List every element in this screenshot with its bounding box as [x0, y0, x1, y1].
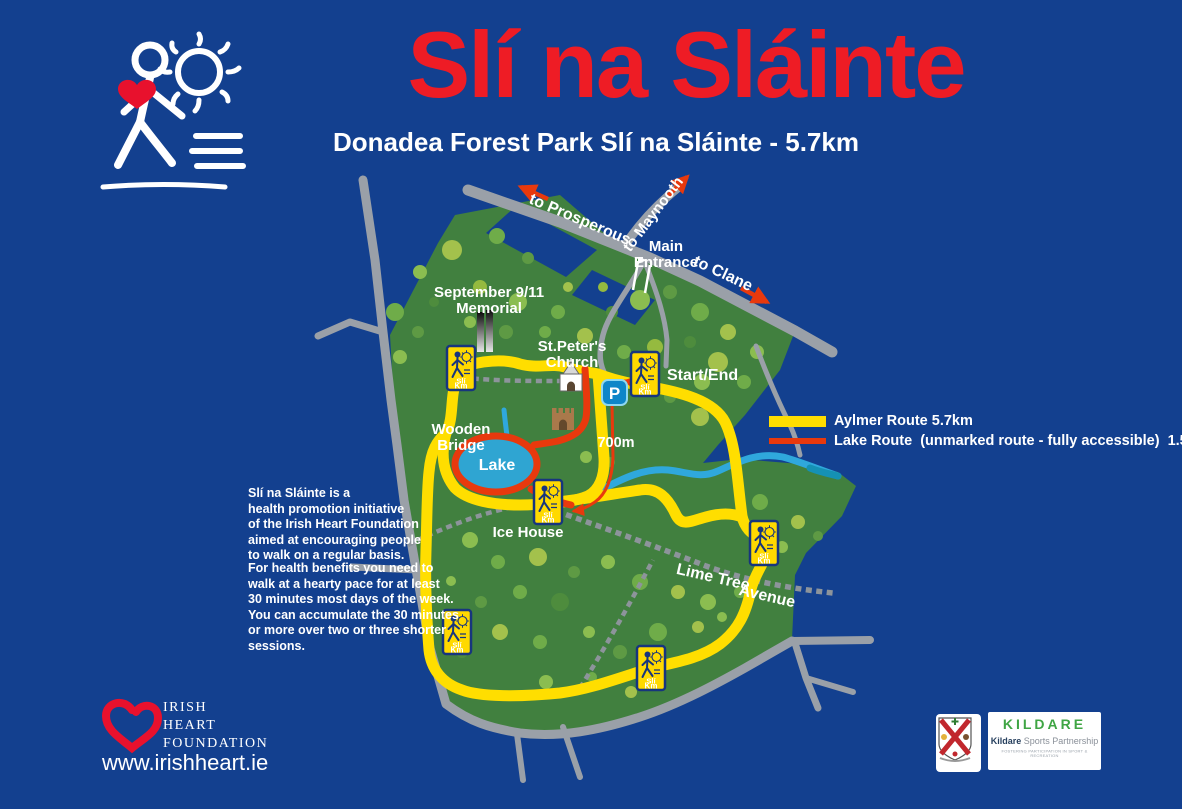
- org-line: HEART: [163, 717, 268, 735]
- tree: [630, 290, 650, 310]
- legend-row-aylmer: Aylmer Route 5.7km: [769, 413, 1182, 429]
- info-line: or more over two or three shorter: [248, 623, 459, 639]
- tree: [386, 303, 404, 321]
- ksp-name-rest: Sports Partnership: [1021, 736, 1098, 746]
- ksp-wordmark: KILDARE: [988, 716, 1101, 732]
- info-line: aimed at encouraging people: [248, 533, 421, 549]
- road-stub: [517, 734, 523, 780]
- tree: [692, 621, 704, 633]
- tree: [413, 265, 427, 279]
- label-main-entrance-1: Main: [649, 238, 683, 255]
- page-title: Slí na Sláinte: [330, 18, 1042, 112]
- info-line: Slí na Sláinte is a: [248, 486, 421, 502]
- tree: [492, 624, 508, 640]
- info-line: walk at a hearty pace for at least: [248, 577, 459, 593]
- sli-na-slainte-logo: [103, 34, 243, 187]
- ksp-name: Kildare Sports Partnership: [988, 736, 1101, 746]
- road-branch: [318, 322, 383, 336]
- ksp-tagline: FOSTERING PARTICIPATION IN SPORT & RECRE…: [999, 749, 1089, 759]
- lake-route-swatch: [769, 438, 826, 444]
- tree: [791, 515, 805, 529]
- tree: [393, 350, 407, 364]
- km-marker-ice-house: [534, 480, 562, 525]
- tree: [649, 623, 667, 641]
- aylmer-route-label: Aylmer Route 5.7km: [834, 413, 973, 429]
- parking-sign-letter: P: [609, 384, 620, 403]
- tree: [551, 305, 565, 319]
- label-wooden-bridge-1: Wooden: [432, 421, 491, 438]
- tree: [491, 555, 505, 569]
- tree: [663, 285, 677, 299]
- tree: [720, 324, 736, 340]
- info-line: of the Irish Heart Foundation: [248, 517, 421, 533]
- road-southeast: [792, 640, 870, 641]
- tree: [691, 408, 709, 426]
- label-700m: 700m: [597, 435, 634, 451]
- tree: [752, 494, 768, 510]
- info-paragraph-2: For health benefits you need to walk at …: [248, 561, 459, 654]
- tree: [563, 282, 573, 292]
- kildare-crest-logo: [936, 714, 981, 772]
- km-marker-start-end: [631, 352, 659, 397]
- tree: [462, 532, 478, 548]
- km-marker: [637, 646, 665, 691]
- tree: [717, 612, 727, 622]
- poster: Slí Km: [0, 0, 1182, 809]
- label-memorial-2: Memorial: [456, 300, 522, 317]
- info-line: For health benefits you need to: [248, 561, 459, 577]
- lake-inlet-stream: [504, 410, 507, 436]
- tree: [737, 375, 751, 389]
- tree: [684, 336, 696, 348]
- label-ice-house: Ice House: [493, 524, 564, 541]
- tree: [489, 228, 505, 244]
- website-url: www.irishheart.ie: [102, 750, 268, 776]
- tree: [513, 585, 527, 599]
- parking-sign: P: [602, 380, 627, 405]
- label-main-entrance-2: Entrance: [634, 254, 698, 271]
- tree: [551, 593, 569, 611]
- tree: [700, 594, 716, 610]
- info-line: health promotion initiative: [248, 502, 421, 518]
- tree: [691, 303, 709, 321]
- tree: [625, 686, 637, 698]
- route-legend: Aylmer Route 5.7km Lake Route (unmarked …: [769, 413, 1182, 453]
- tree: [617, 345, 631, 359]
- tree: [533, 635, 547, 649]
- label-wooden-bridge-2: Bridge: [437, 437, 485, 454]
- tree: [539, 675, 553, 689]
- info-line: sessions.: [248, 639, 459, 655]
- tree: [583, 626, 595, 638]
- tree: [499, 325, 513, 339]
- tree: [671, 585, 685, 599]
- info-paragraph-1: Slí na Sláinte is a health promotion ini…: [248, 486, 421, 564]
- tree: [598, 282, 608, 292]
- kildare-sports-partnership-logo: KILDARE Kildare Sports Partnership FOSTE…: [988, 712, 1101, 770]
- km-marker: [750, 521, 778, 566]
- park-map: Slí Km: [0, 0, 1182, 809]
- tree: [601, 555, 615, 569]
- lake-route-label: Lake Route (unmarked route - fully acces…: [834, 433, 1182, 449]
- tree: [813, 531, 823, 541]
- page-subtitle: Donadea Forest Park Slí na Sláinte - 5.7…: [333, 127, 859, 158]
- label-start-end: Start/End: [667, 367, 738, 384]
- ksp-name-bold: Kildare: [991, 736, 1022, 746]
- tree: [568, 566, 580, 578]
- label-church-2: Church: [546, 354, 599, 371]
- label-lake: Lake: [479, 457, 516, 474]
- info-line: You can accumulate the 30 minutes: [248, 608, 459, 624]
- tree: [539, 326, 551, 338]
- tree: [522, 252, 534, 264]
- tree: [412, 326, 424, 338]
- tree: [613, 645, 627, 659]
- info-line: 30 minutes most days of the week.: [248, 592, 459, 608]
- irish-heart-foundation-name: IRISH HEART FOUNDATION: [163, 699, 268, 753]
- tree: [580, 451, 592, 463]
- tree: [475, 596, 487, 608]
- tree: [442, 240, 462, 260]
- org-line: IRISH: [163, 699, 268, 717]
- legend-row-lake: Lake Route (unmarked route - fully acces…: [769, 433, 1182, 449]
- kildare-crest-icon: [936, 714, 974, 764]
- label-church-1: St.Peter's: [538, 338, 607, 355]
- km-marker: [447, 346, 475, 391]
- aylmer-route-swatch: [769, 416, 826, 427]
- tree: [464, 316, 476, 328]
- tree: [529, 548, 547, 566]
- label-memorial-1: September 9/11: [434, 284, 544, 301]
